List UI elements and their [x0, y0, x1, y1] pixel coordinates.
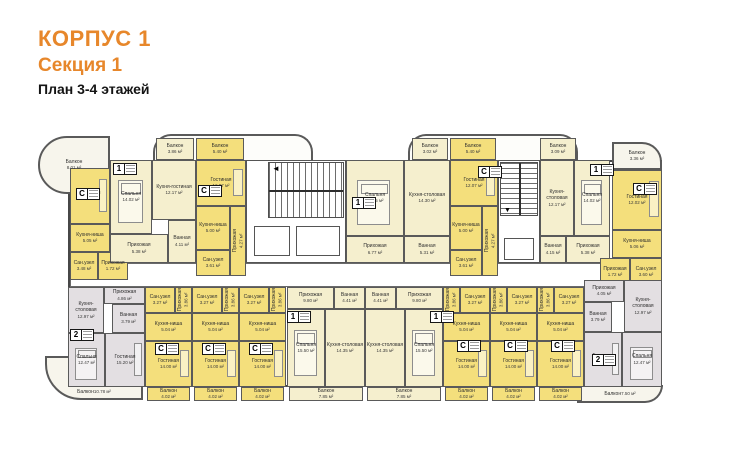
room-label: Сан.узел3.61 м²	[203, 257, 224, 269]
room-label: Ванная4.15 м²	[544, 243, 561, 255]
room-label: Спальня14.02 м²	[582, 192, 602, 204]
room: Кухня-ниша5.00 м²	[450, 206, 482, 250]
apartment-type-badge: С	[76, 188, 100, 200]
room: Ванная4.11 м²	[168, 220, 196, 263]
room: Балкон3.86 м²	[156, 138, 194, 160]
room-label: Прихожая9.80 м²	[408, 292, 431, 304]
room-label: Кухня-ниша5.05 м²	[76, 232, 103, 244]
apartment-type-badge: С	[478, 166, 502, 178]
room: Кухня-ниша5.04 м²	[490, 313, 537, 341]
room-label: Прихожая3.86 м²	[224, 288, 236, 311]
room: Прихожая4.05 м²	[584, 280, 624, 302]
room: Ванная5.31 м²	[404, 236, 450, 263]
room-label: Прихожая4.86 м²	[113, 289, 136, 301]
elevator-shaft	[296, 226, 340, 256]
room-label: Ванная3.79 м²	[589, 311, 606, 323]
room-label: Балкон8.01 м²	[66, 159, 83, 171]
room-label: Прихожая1.72 м²	[603, 266, 626, 278]
elevator-shaft	[504, 238, 534, 260]
room: Сан.узел3.27 м²	[239, 287, 269, 313]
room-label: Балкон4.02 м²	[458, 388, 475, 400]
apartment-type-badge: 2	[70, 329, 94, 341]
room-label: Кухня-ниша5.00 м²	[199, 222, 226, 234]
apartment-type-badge: 1	[430, 311, 454, 323]
room-label: Кухня-столовая12.97 м²	[625, 297, 661, 316]
room: Ванная3.79 м²	[584, 302, 612, 332]
room: Кухня-ниша5.04 м²	[145, 313, 192, 341]
room: Балкон5.40 м²	[196, 138, 244, 160]
room: Сан.узел3.27 м²	[145, 287, 175, 313]
room: Гостиная15.20 м²	[105, 333, 145, 387]
room-label: Спальня12.47 м²	[76, 354, 96, 366]
room: Балкон4.02 м²	[147, 387, 190, 401]
room: Балкон5.40 м²	[450, 138, 496, 160]
room-label: Балкон7.85 м²	[318, 388, 335, 400]
room-label: Прихожая3.86 м²	[271, 288, 283, 311]
room-label: Прихожая9.80 м²	[299, 292, 322, 304]
room: Кухня-столовая12.17 м²	[540, 160, 574, 236]
room: Сан.узел3.27 м²	[554, 287, 584, 313]
room-label: Сан.узел3.27 м²	[465, 294, 486, 306]
room-label: Прихожая3.86 м²	[177, 288, 189, 311]
room: Балкон4.02 м²	[241, 387, 284, 401]
room-label: Балкон3.09 м²	[550, 143, 567, 155]
room: Кухня-столовая12.97 м²	[68, 287, 104, 333]
building-title: КОРПУС 1	[38, 26, 151, 52]
room: Кухня-гостиная12.17 м²	[152, 160, 196, 220]
room-label: Спальня14.02 м²	[121, 191, 141, 203]
room: Кухня-ниша5.04 м²	[192, 313, 239, 341]
room: Сан.узел3.48 м²	[70, 252, 98, 280]
room-label: Балкон3.36 м²	[629, 150, 646, 162]
room-label: Кухня-гостиная12.17 м²	[156, 184, 191, 196]
sofa-icon	[572, 350, 581, 378]
room-label: Кухня-ниша5.00 м²	[452, 222, 479, 234]
room: Балкон7.85 м²	[367, 387, 441, 401]
room-label: Ванная4.11 м²	[173, 235, 190, 247]
room-label: Кухня-столовая12.17 м²	[541, 189, 573, 208]
room: Ванная4.41 м²	[334, 287, 365, 309]
room: Сан.узел3.27 м²	[507, 287, 537, 313]
room: Прихожая9.80 м²	[287, 287, 334, 309]
room: Балкон3.09 м²	[540, 138, 576, 160]
room: Гостиная12.02 м²	[612, 170, 662, 230]
room-label: Спальня15.50 м²	[414, 342, 434, 354]
room: Сан.узел3.27 м²	[192, 287, 222, 313]
room-label: Сан.узел3.60 м²	[636, 266, 657, 278]
room-label: Кухня-ниша5.04 м²	[249, 321, 276, 333]
apartment-type-badge: С	[249, 343, 273, 355]
room-label: Сан.узел3.27 м²	[197, 294, 218, 306]
apartment-type-badge: 2	[592, 354, 616, 366]
room: Кухня-столовая12.97 м²	[624, 280, 662, 332]
room: Ванная3.79 м²	[112, 304, 145, 333]
room-label: Кухня-ниша5.04 м²	[500, 321, 527, 333]
room: Балкон4.02 м²	[539, 387, 582, 401]
corridor	[70, 263, 660, 287]
room: Кухня-столовая14.30 м²	[404, 160, 450, 236]
room: Кухня-ниша5.00 м²	[196, 206, 230, 250]
room: Прихожая5.38 м²	[110, 234, 168, 263]
room-label: Ванная4.41 м²	[372, 292, 389, 304]
room-label: Гостиная14.00 м²	[158, 358, 179, 370]
room: Прихожая4.27 м²	[482, 206, 498, 276]
room-label: Гостиная14.00 м²	[205, 358, 226, 370]
room-label: Сан.узел3.48 м²	[74, 260, 95, 272]
apartment-type-badge: 1	[287, 311, 311, 323]
room-label: Прихожая5.38 м²	[576, 243, 599, 255]
apartment-type-badge: С	[504, 340, 528, 352]
sofa-icon	[227, 350, 236, 378]
room-label: Ванная4.41 м²	[341, 292, 358, 304]
room: Прихожая3.86 м²	[175, 287, 192, 313]
room-label: Ванная5.31 м²	[418, 243, 435, 255]
room-label: Кухня-ниша5.04 м²	[155, 321, 182, 333]
room-label: Прихожая1.72 м²	[101, 260, 124, 272]
room: Сан.узел3.61 м²	[196, 250, 230, 276]
room-label: Спальня12.47 м²	[632, 353, 652, 365]
section-title: Секция 1	[38, 55, 151, 77]
room-label: Прихожая3.86 м²	[445, 288, 457, 311]
apartment-type-badge: 1	[590, 164, 614, 176]
room-label: Гостиная12.02 м²	[627, 194, 648, 206]
room: Прихожая3.86 м²	[490, 287, 507, 313]
sofa-icon	[274, 350, 283, 378]
apartment-type-badge: С	[202, 343, 226, 355]
room-label: Прихожая3.86 м²	[539, 288, 551, 311]
room-label: Гостиная14.00 м²	[456, 358, 477, 370]
room: Прихожая3.86 м²	[269, 287, 286, 313]
room-label: Сан.узел3.27 м²	[512, 294, 533, 306]
room-label: Сан.узел3.27 м²	[150, 294, 171, 306]
apartment-type-badge: 1	[113, 163, 137, 175]
room-label: Гостиная14.00 м²	[550, 358, 571, 370]
room-label: Балкон7.85 м²	[396, 388, 413, 400]
title-block: КОРПУС 1 Секция 1 План 3-4 этажей	[38, 26, 151, 97]
room-label: Балкон4.02 м²	[160, 388, 177, 400]
room-label: Кухня-столовая14.35 м²	[367, 342, 403, 354]
stairs-icon	[268, 162, 344, 218]
room-label: Балкон5.40 м²	[465, 143, 482, 155]
room-label: Кухня-столовая14.35 м²	[327, 342, 363, 354]
apartment-type-badge: С	[633, 183, 657, 195]
sofa-icon	[478, 350, 487, 378]
room: Балкон4.02 м²	[194, 387, 237, 401]
room-label: Сан.узел3.27 м²	[244, 294, 265, 306]
room: Прихожая4.27 м²	[230, 206, 246, 276]
floor-plan-page: КОРПУС 1 Секция 1 План 3-4 этажей Балкон…	[0, 0, 740, 472]
room: Ванная4.15 м²	[540, 236, 566, 263]
room-label: Балкон7.50 м²	[604, 391, 635, 398]
apartment-type-badge: С	[155, 343, 179, 355]
room-label: Сан.узел3.27 м²	[559, 294, 580, 306]
room: Прихожая3.86 м²	[537, 287, 554, 313]
room-label: Прихожая4.27 м²	[484, 229, 496, 252]
apartment-type-badge: С	[457, 340, 481, 352]
room-label: Прихожая3.86 м²	[492, 288, 504, 311]
room: Сан.узел3.27 м²	[460, 287, 490, 313]
room: Кухня-столовая14.35 м²	[325, 309, 365, 387]
room: Прихожая4.86 м²	[104, 287, 145, 304]
room-label: Балкон4.02 м²	[552, 388, 569, 400]
room: Балкон4.02 м²	[445, 387, 488, 401]
room: Балкон3.36 м²	[612, 142, 662, 170]
apartment-type-badge: 1	[352, 197, 376, 209]
room: Спальня12.47 м²	[68, 333, 105, 387]
room-label: Прихожая5.38 м²	[127, 242, 150, 254]
room: Кухня-ниша5.04 м²	[537, 313, 584, 341]
room: Кухня-ниша5.06 м²	[612, 230, 662, 258]
room-label: Балкон3.86 м²	[167, 143, 184, 155]
room-label: Балкон5.40 м²	[212, 143, 229, 155]
room-label: Кухня-ниша5.06 м²	[623, 238, 650, 250]
elevator-shaft	[254, 226, 290, 256]
room-label: Гостиная12.07 м²	[464, 177, 485, 189]
room-label: Кухня-ниша5.04 м²	[453, 321, 480, 333]
room: Прихожая3.86 м²	[443, 287, 460, 313]
room-label: Кухня-ниша5.04 м²	[547, 321, 574, 333]
room: Балкон3.02 м²	[412, 138, 448, 160]
sofa-icon	[233, 169, 242, 197]
room-label: Балкон4.02 м²	[505, 388, 522, 400]
room-label: Кухня-столовая12.97 м²	[69, 301, 103, 320]
room-label: Прихожая6.77 м²	[363, 243, 386, 255]
room-label: Балкон4.02 м²	[207, 388, 224, 400]
room-label: Спальня15.50 м²	[296, 342, 316, 354]
room: Спальня12.47 м²	[622, 332, 662, 387]
room-label: Прихожая4.27 м²	[232, 229, 244, 252]
stairs-icon	[500, 162, 538, 216]
room: Балкон7.50 м²	[577, 385, 663, 403]
room-label: Гостиная15.20 м²	[115, 354, 136, 366]
room: Гостиная12.07 м²	[196, 160, 246, 206]
apartment-type-badge: С	[551, 340, 575, 352]
room-label: Балкон4.02 м²	[254, 388, 271, 400]
room: Прихожая6.77 м²	[346, 236, 404, 263]
room: Кухня-столовая14.35 м²	[365, 309, 405, 387]
room-label: Кухня-столовая14.30 м²	[409, 192, 445, 204]
room-label: Балкон3.02 м²	[422, 143, 439, 155]
room: Кухня-ниша5.04 м²	[239, 313, 286, 341]
room: Ванная4.41 м²	[365, 287, 396, 309]
room-label: Балкон10.78 м²	[77, 389, 111, 396]
room-label: Сан.узел3.61 м²	[456, 257, 477, 269]
room: Прихожая3.86 м²	[222, 287, 239, 313]
room-label: Кухня-ниша5.04 м²	[202, 321, 229, 333]
room-label: Ванная3.79 м²	[120, 312, 137, 324]
room-label: Прихожая4.05 м²	[592, 285, 615, 297]
room-label: Гостиная14.00 м²	[252, 358, 273, 370]
sofa-icon	[525, 350, 534, 378]
room: Балкон7.85 м²	[289, 387, 363, 401]
apartment-type-badge: С	[198, 185, 222, 197]
room: Прихожая9.80 м²	[396, 287, 443, 309]
room-label: Гостиная14.00 м²	[503, 358, 524, 370]
room: Кухня-ниша5.05 м²	[70, 224, 110, 252]
room: Балкон4.02 м²	[492, 387, 535, 401]
sofa-icon	[180, 350, 189, 378]
room: Сан.узел3.61 м²	[450, 250, 482, 276]
floors-subtitle: План 3-4 этажей	[38, 81, 151, 97]
